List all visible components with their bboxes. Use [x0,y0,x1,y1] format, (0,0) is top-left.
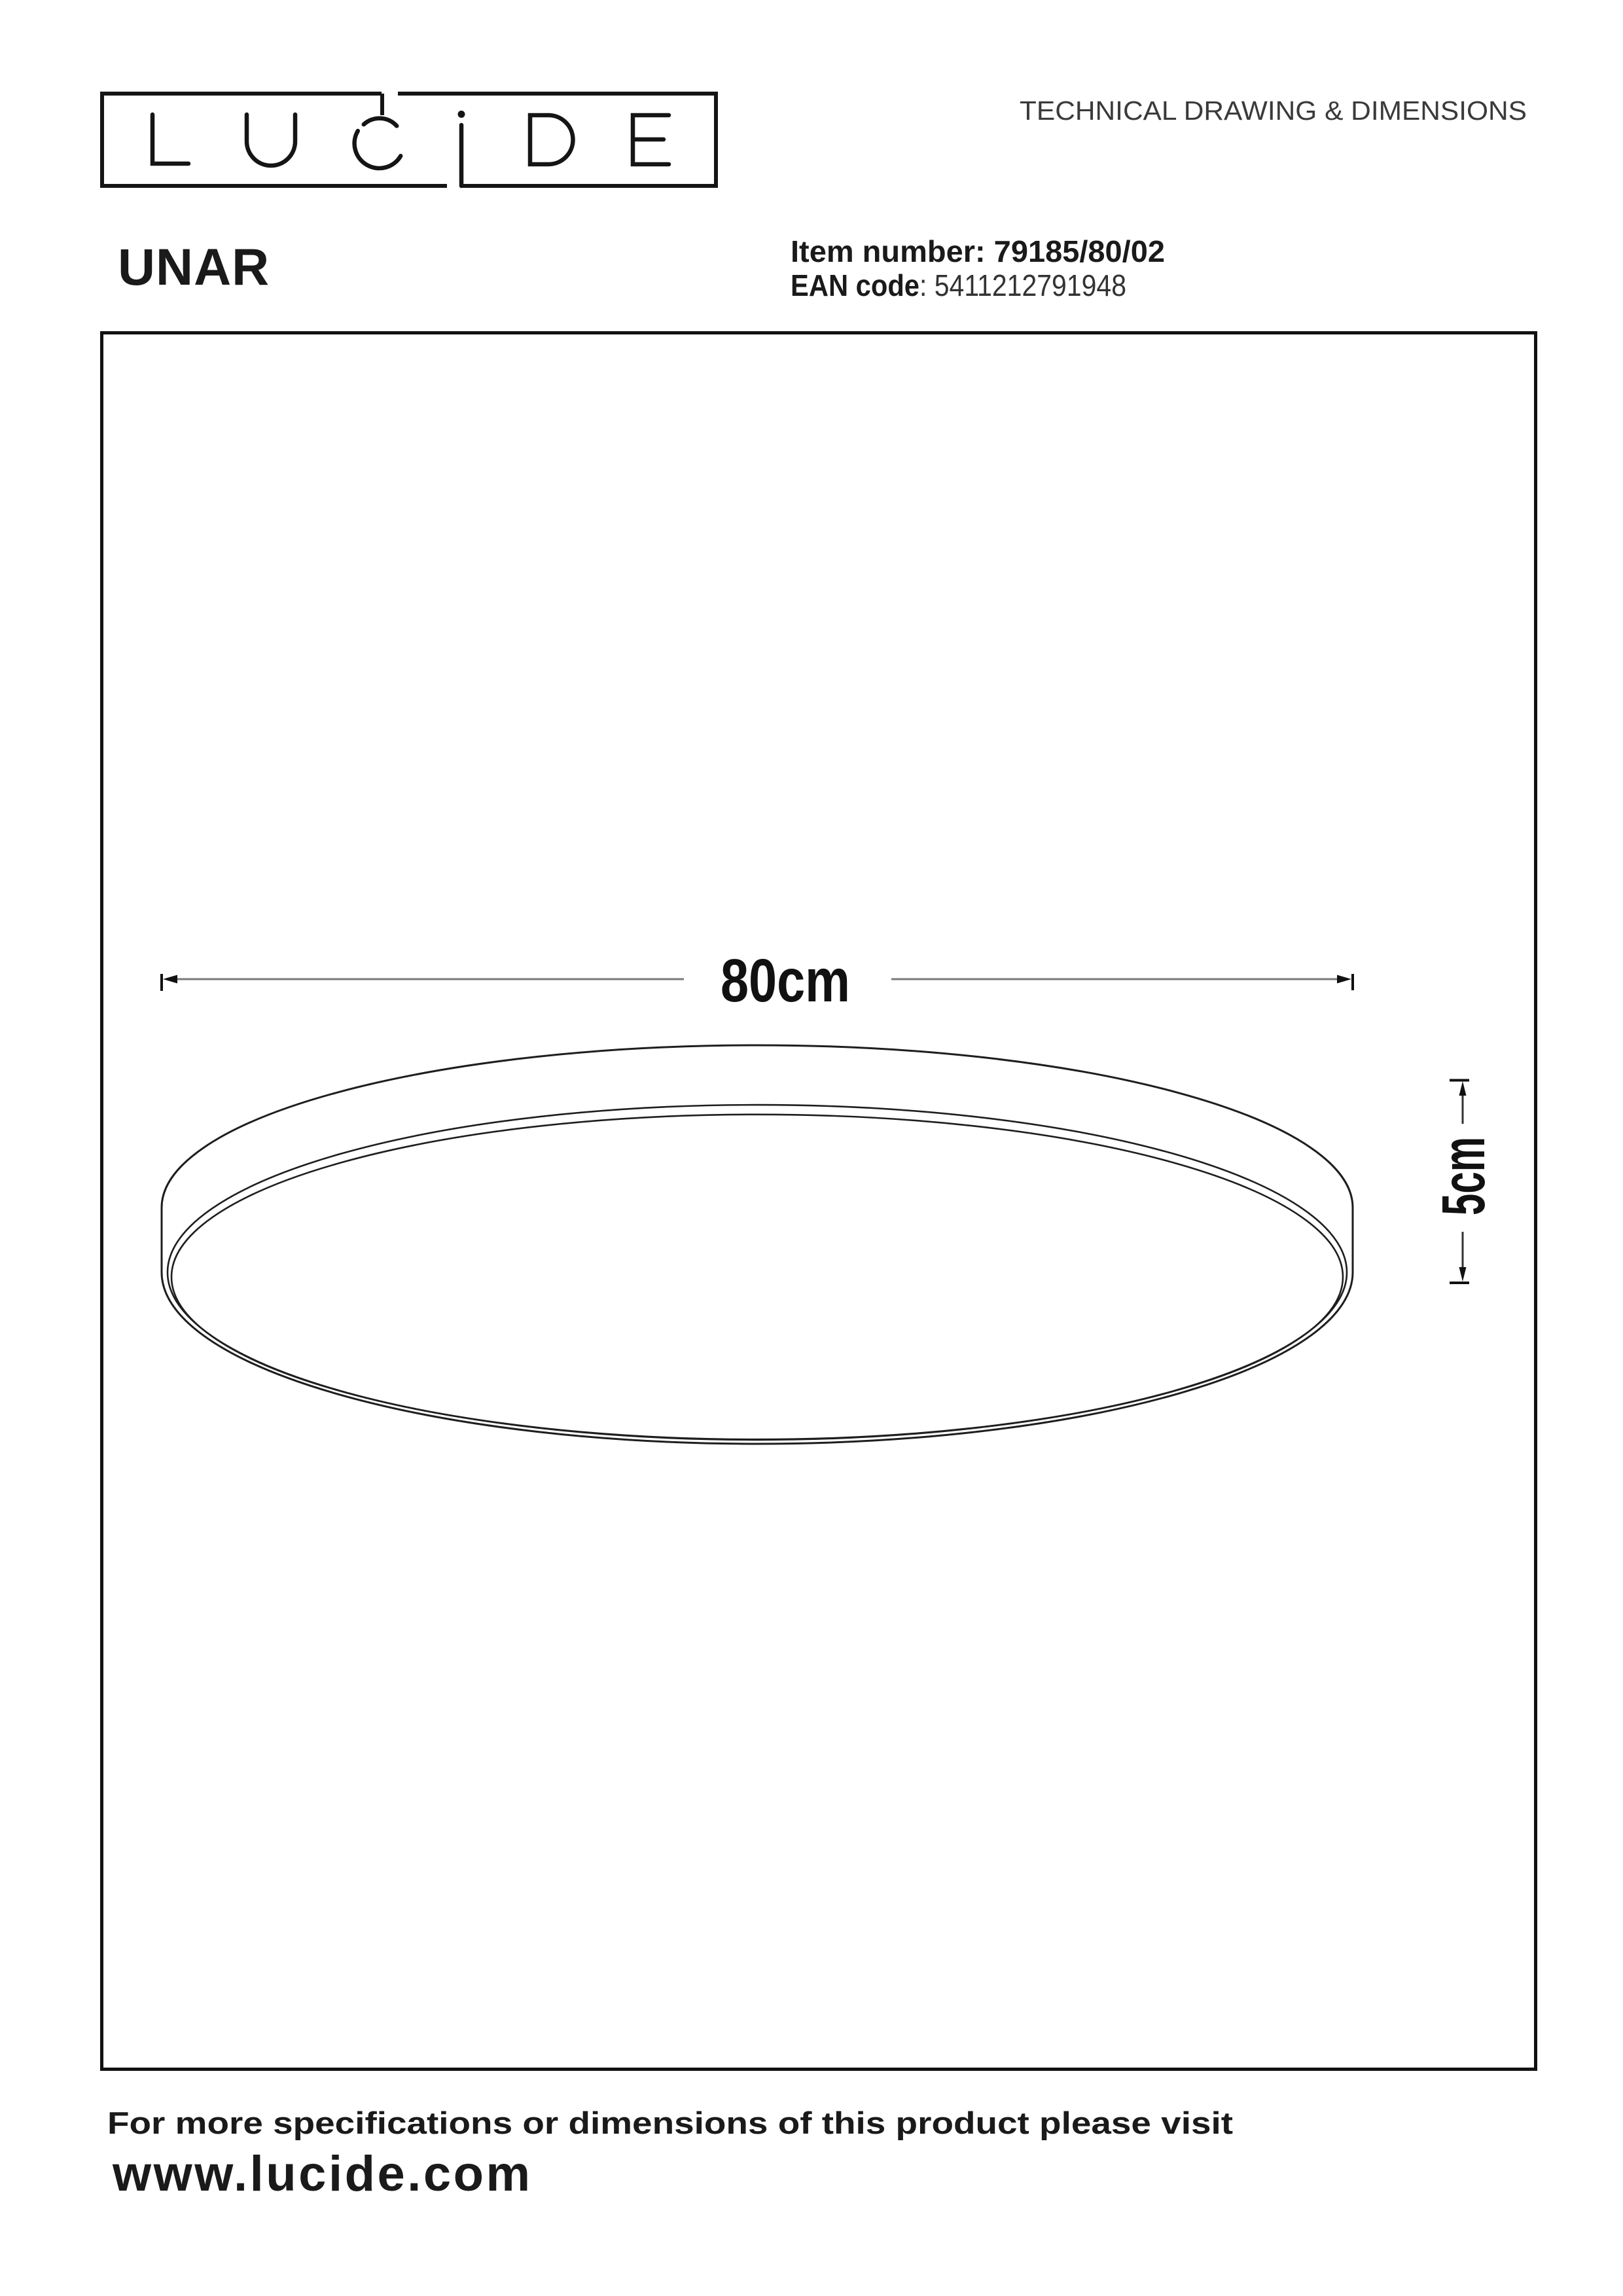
svg-text:TECHNICAL DRAWING & DIMENSIONS: TECHNICAL DRAWING & DIMENSIONS [1020,96,1527,126]
svg-text:: 5411212791948: : 5411212791948 [919,268,1126,302]
svg-text:EAN code: EAN code [791,268,919,302]
svg-text:For more specifications or dim: For more specifications or dimensions of… [107,2106,1233,2140]
svg-text:UNAR: UNAR [118,238,270,296]
svg-text:5cm: 5cm [1429,1137,1497,1215]
svg-text:Item number: 79185/80/02: Item number: 79185/80/02 [791,234,1165,268]
svg-text:80cm: 80cm [721,946,850,1014]
svg-text:www.lucide.com: www.lucide.com [112,2146,533,2202]
